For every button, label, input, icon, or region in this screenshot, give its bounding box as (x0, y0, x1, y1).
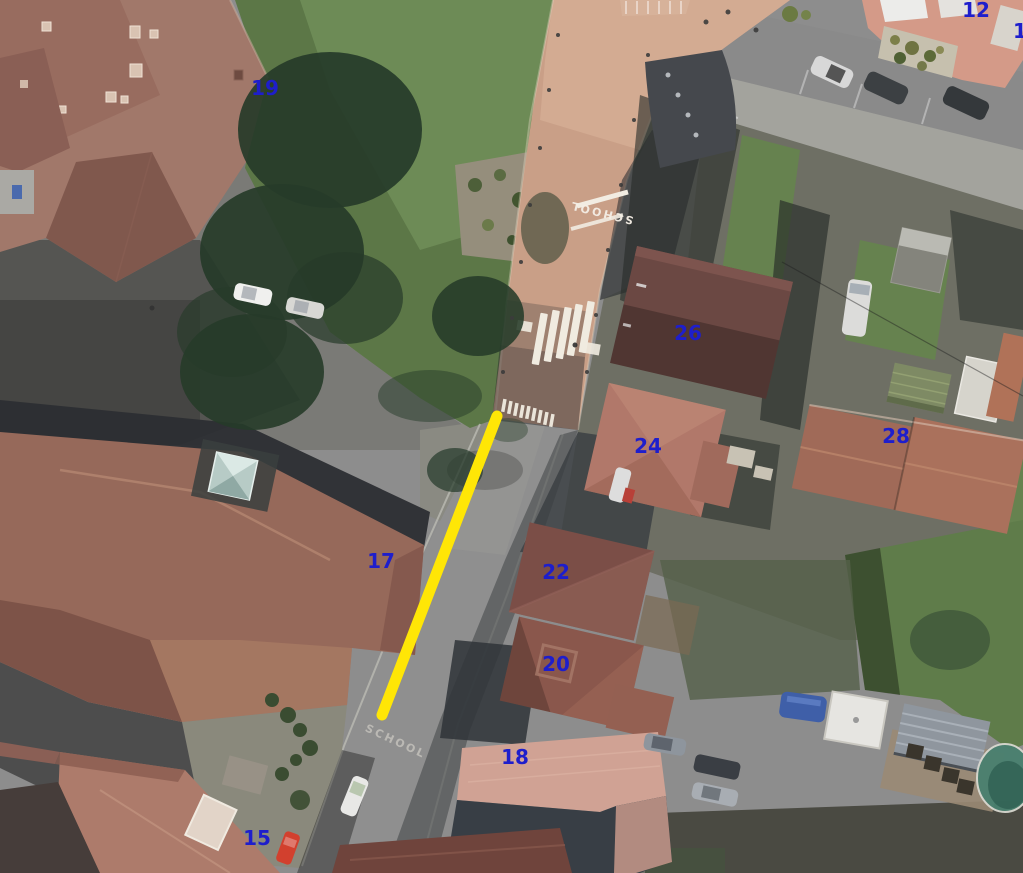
aerial-map-view[interactable]: SCHOOL SCHOOL (0, 0, 1023, 873)
orthophoto-scene: SCHOOL SCHOOL (0, 0, 1023, 873)
swimming-pool (977, 744, 1023, 812)
car (693, 753, 742, 780)
building-flat-white (824, 692, 887, 749)
building-roof-17 (0, 432, 424, 722)
covered-car (778, 691, 827, 723)
building-annex-20 (606, 684, 675, 741)
building-curved-roof (645, 50, 736, 168)
car (691, 781, 740, 807)
